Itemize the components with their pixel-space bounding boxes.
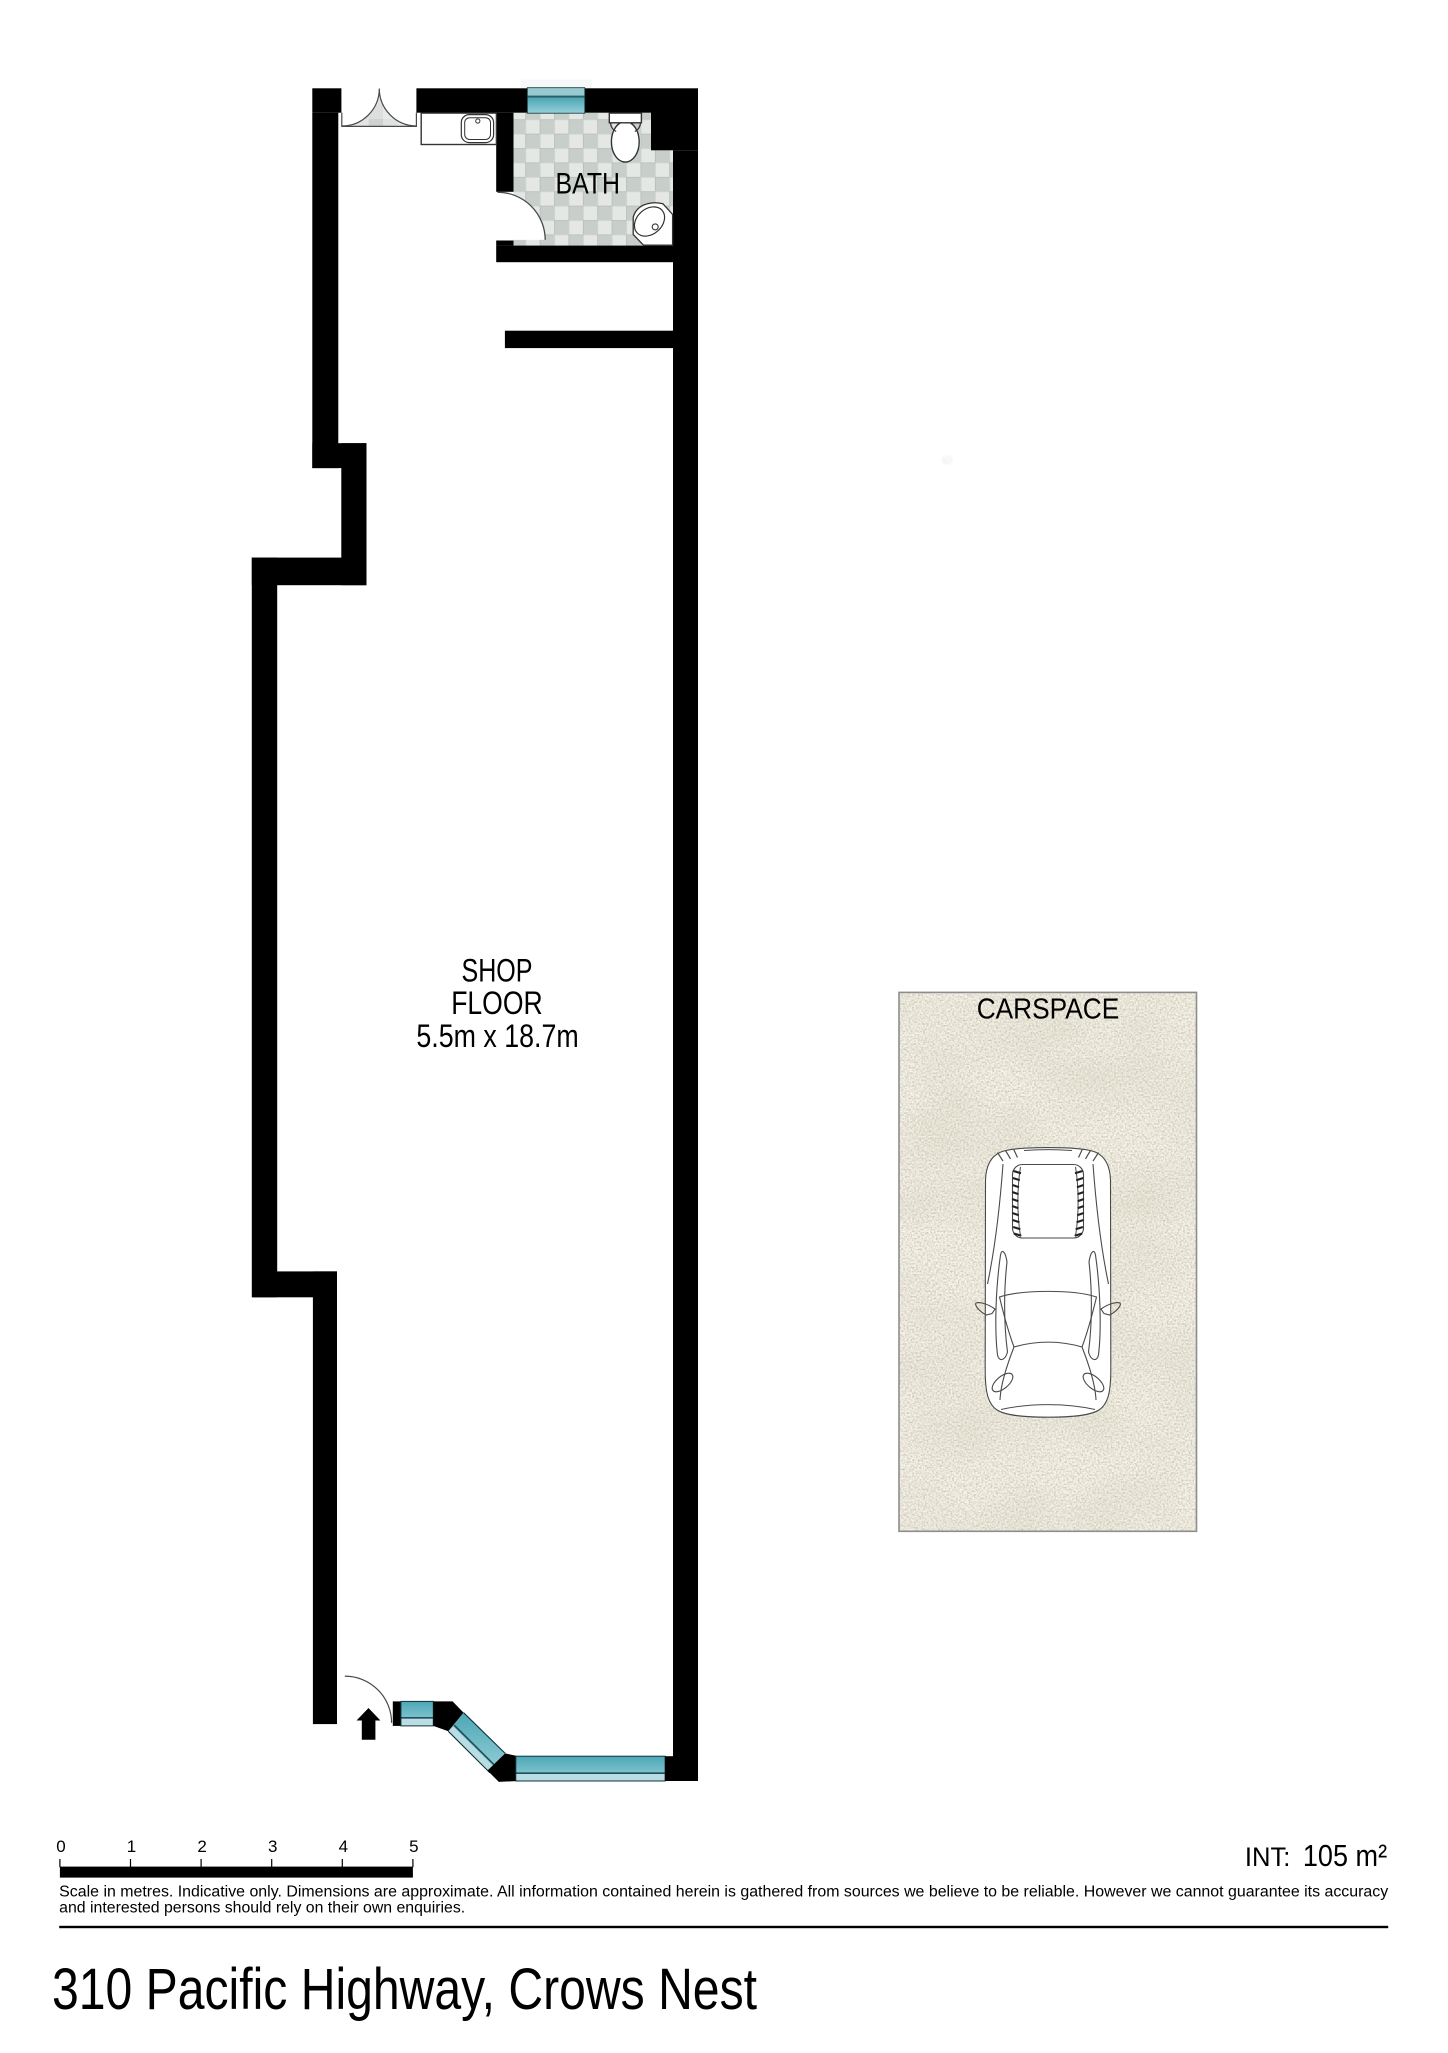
svg-text:BATH: BATH [556, 168, 621, 201]
svg-text:0: 0 [56, 1837, 65, 1856]
svg-text:and interested persons should: and interested persons should rely on th… [59, 1900, 465, 1917]
svg-text:CARSPACE: CARSPACE [977, 994, 1120, 1026]
svg-text:5.5m x 18.7m: 5.5m x 18.7m [416, 1018, 578, 1054]
svg-text:1: 1 [127, 1837, 136, 1856]
svg-text:2: 2 [197, 1837, 206, 1856]
svg-text:105 m²: 105 m² [1303, 1839, 1387, 1873]
svg-text:INT:: INT: [1245, 1842, 1291, 1872]
svg-text:SHOP: SHOP [462, 952, 533, 988]
svg-text:4: 4 [339, 1837, 348, 1856]
svg-text:3: 3 [268, 1837, 277, 1856]
svg-text:FLOOR: FLOOR [451, 985, 543, 1021]
svg-text:310 Pacific Highway, Crows Nes: 310 Pacific Highway, Crows Nest [52, 1957, 757, 2022]
svg-text:Scale in metres. Indicative on: Scale in metres. Indicative only. Dimens… [59, 1884, 1388, 1901]
svg-text:5: 5 [409, 1837, 418, 1856]
